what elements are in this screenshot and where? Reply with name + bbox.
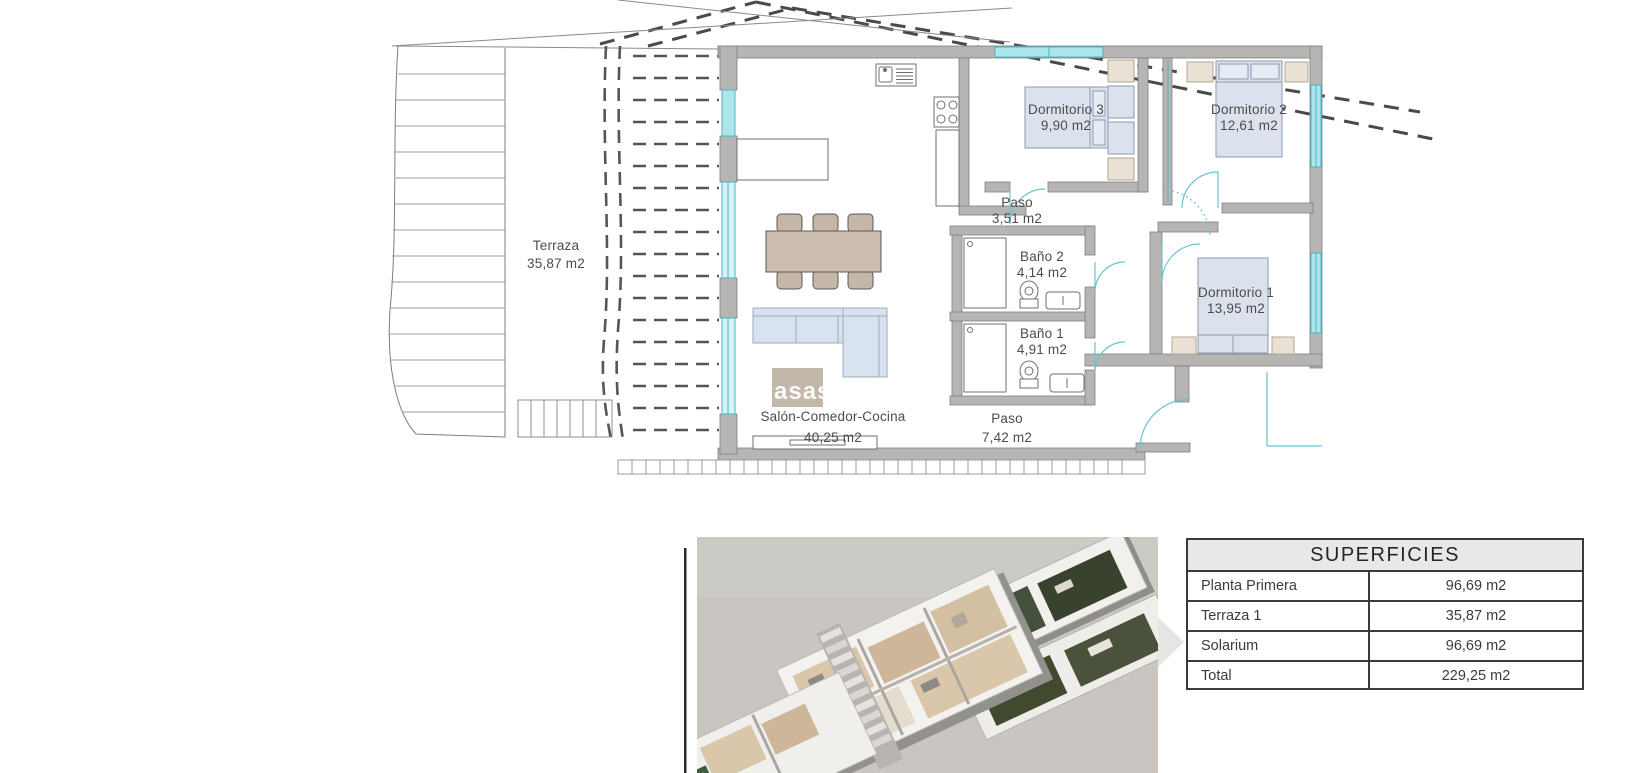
watermark-text: asas: [774, 378, 831, 405]
dining-set: [766, 214, 881, 289]
row-label: Solarium: [1188, 632, 1370, 660]
lower-terrace-edge: [618, 460, 1145, 474]
label-paso2: Paso: [991, 411, 1023, 426]
dining-table: [766, 231, 881, 272]
label-dorm3-area: 9,90 m2: [1041, 118, 1091, 133]
table-row: Planta Primera 96,69 m2: [1188, 572, 1582, 602]
table-row: Solarium 96,69 m2: [1188, 632, 1582, 662]
row-value: 96,69 m2: [1370, 632, 1582, 660]
section-divider-line: [684, 548, 687, 773]
sofa: [753, 308, 887, 377]
label-bano1-area: 4,91 m2: [1017, 342, 1067, 357]
row-value: 96,69 m2: [1370, 572, 1582, 600]
watermark: asas: [772, 368, 831, 407]
terrace-stairs: [518, 400, 612, 437]
superficies-table-title: SUPERFICIES: [1188, 540, 1582, 572]
row-label: Terraza 1: [1188, 602, 1370, 630]
label-dorm2: Dormitorio 2: [1211, 102, 1287, 117]
label-dorm1: Dormitorio 1: [1198, 285, 1274, 300]
kitchen-counter: [936, 130, 959, 206]
kitchen-island: [737, 139, 828, 180]
render-3d-image: [639, 529, 1181, 773]
label-salon: Salón-Comedor-Cocina: [760, 409, 905, 424]
label-salon-area: 40,25 m2: [804, 430, 862, 445]
label-dorm1-area: 13,95 m2: [1207, 301, 1265, 316]
label-terraza-area: 35,87 m2: [527, 256, 585, 271]
row-label: Total: [1188, 662, 1370, 690]
label-paso1-area: 3,51 m2: [992, 211, 1042, 226]
table-row: Terraza 1 35,87 m2: [1188, 602, 1582, 632]
label-dorm2-area: 12,61 m2: [1220, 118, 1278, 133]
label-paso1: Paso: [1001, 195, 1033, 210]
row-value: 229,25 m2: [1370, 662, 1582, 690]
label-terraza: Terraza: [533, 238, 580, 253]
row-value: 35,87 m2: [1370, 602, 1582, 630]
room-labels: Terraza 35,87 m2 Salón-Comedor-Cocina 40…: [527, 102, 1287, 445]
pergola-dashed-zone: [603, 46, 719, 440]
label-bano1: Baño 1: [1020, 326, 1064, 341]
label-bano2-area: 4,14 m2: [1017, 265, 1067, 280]
kitchen: [737, 64, 959, 206]
label-paso2-area: 7,42 m2: [982, 430, 1032, 445]
table-row: Total 229,25 m2: [1188, 662, 1582, 690]
label-dorm3: Dormitorio 3: [1028, 102, 1104, 117]
label-bano2: Baño 2: [1020, 249, 1064, 264]
superficies-table: SUPERFICIES Planta Primera 96,69 m2 Terr…: [1186, 538, 1584, 690]
row-label: Planta Primera: [1188, 572, 1370, 600]
